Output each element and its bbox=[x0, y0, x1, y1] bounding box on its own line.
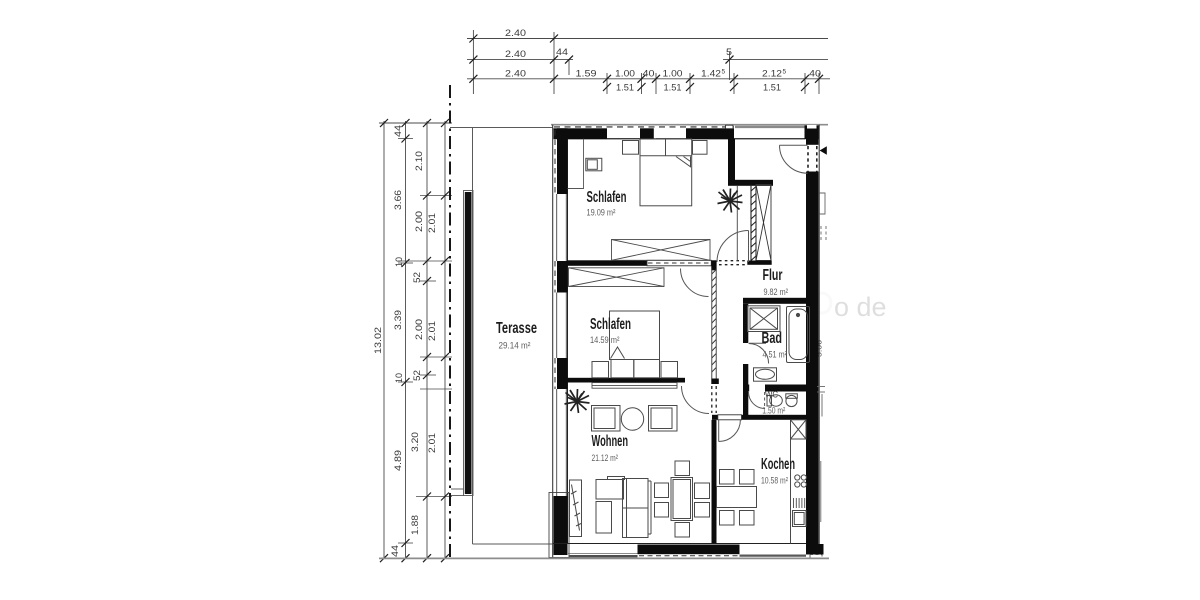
svg-text:Terasse: Terasse bbox=[496, 320, 537, 337]
svg-text:2.00: 2.00 bbox=[414, 211, 425, 232]
svg-text:2.01: 2.01 bbox=[427, 433, 438, 453]
svg-text:2.01: 2.01 bbox=[427, 321, 438, 341]
svg-text:o de: o de bbox=[834, 292, 887, 322]
svg-text:1.00: 1.00 bbox=[615, 69, 635, 80]
svg-text:52: 52 bbox=[412, 370, 423, 381]
svg-text:40: 40 bbox=[809, 69, 821, 80]
svg-text:5: 5 bbox=[726, 47, 732, 58]
svg-text:1.51: 1.51 bbox=[616, 83, 634, 94]
svg-text:10.58 m²: 10.58 m² bbox=[761, 476, 788, 487]
svg-text:19.09 m²: 19.09 m² bbox=[587, 208, 616, 219]
svg-text:Schlafen: Schlafen bbox=[587, 189, 627, 206]
svg-text:13.02: 13.02 bbox=[373, 327, 384, 354]
svg-text:3.20: 3.20 bbox=[410, 432, 421, 452]
svg-text:14.59 m²: 14.59 m² bbox=[590, 335, 620, 346]
svg-text:5: 5 bbox=[722, 69, 726, 76]
svg-text:2.10: 2.10 bbox=[414, 151, 425, 171]
svg-text:Schlafen: Schlafen bbox=[590, 316, 631, 333]
svg-text:10: 10 bbox=[394, 257, 405, 267]
svg-text:3.66: 3.66 bbox=[393, 190, 404, 210]
svg-text:2.00: 2.00 bbox=[414, 319, 425, 340]
svg-text:1.88: 1.88 bbox=[410, 515, 421, 535]
svg-text:44: 44 bbox=[390, 544, 401, 557]
svg-text:1.51: 1.51 bbox=[664, 83, 682, 94]
svg-text:4.51 m²: 4.51 m² bbox=[763, 350, 788, 361]
svg-text:10: 10 bbox=[394, 373, 405, 383]
svg-text:29.14 m²: 29.14 m² bbox=[499, 341, 531, 352]
svg-text:Kochen: Kochen bbox=[761, 456, 795, 473]
svg-text:52: 52 bbox=[412, 272, 423, 283]
svg-text:2.40: 2.40 bbox=[505, 49, 526, 60]
svg-text:3.39: 3.39 bbox=[393, 310, 404, 330]
svg-text:44: 44 bbox=[393, 124, 404, 137]
svg-text:1.50 m²: 1.50 m² bbox=[762, 405, 785, 416]
svg-text:1.51: 1.51 bbox=[763, 83, 781, 94]
svg-text:1.59: 1.59 bbox=[576, 69, 597, 80]
svg-text:2.12: 2.12 bbox=[762, 69, 782, 80]
svg-text:21.12 m²: 21.12 m² bbox=[592, 453, 619, 464]
svg-text:Flur: Flur bbox=[763, 267, 783, 284]
svg-text:2.40: 2.40 bbox=[505, 69, 526, 80]
svg-text:WC: WC bbox=[765, 390, 778, 401]
svg-text:5: 5 bbox=[783, 69, 787, 76]
svg-text:40: 40 bbox=[643, 69, 655, 80]
svg-text:2.01: 2.01 bbox=[427, 213, 438, 233]
svg-text:2.40: 2.40 bbox=[505, 28, 526, 39]
svg-text:44: 44 bbox=[556, 47, 569, 58]
svg-text:1.42: 1.42 bbox=[701, 69, 721, 80]
svg-text:Wohnen: Wohnen bbox=[592, 433, 629, 450]
svg-text:1.00: 1.00 bbox=[663, 69, 683, 80]
svg-text:Bad: Bad bbox=[762, 330, 783, 347]
svg-text:9.82 m²: 9.82 m² bbox=[764, 287, 789, 298]
svg-text:4.89: 4.89 bbox=[393, 450, 404, 471]
